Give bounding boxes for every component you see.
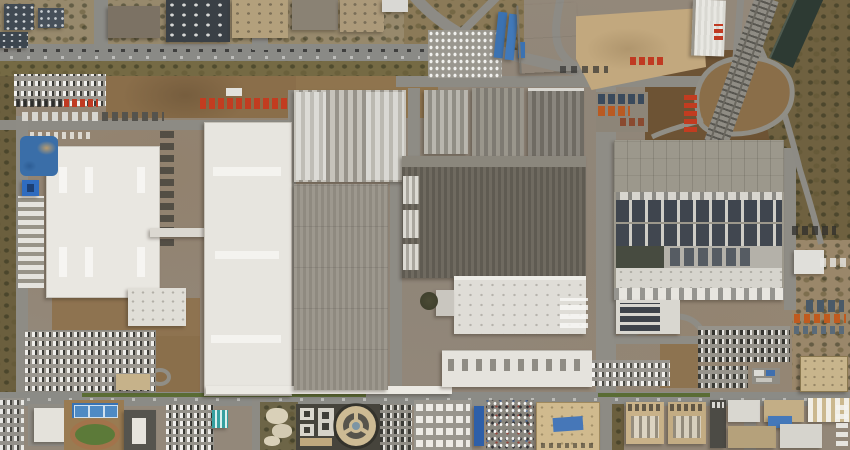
red-truck-near-ne	[714, 24, 723, 40]
court	[104, 405, 118, 418]
roof-vent-bar	[59, 167, 67, 193]
east-trucks-1	[792, 226, 836, 235]
inner-white	[631, 416, 659, 438]
factory-hall-a	[46, 146, 160, 298]
cyan-building	[212, 410, 228, 428]
dock-dashes	[670, 404, 704, 411]
solar-array-row-2	[616, 224, 782, 246]
apartment-block-2	[38, 8, 64, 28]
utility-roof-unit	[27, 184, 34, 192]
urban-road-v1	[94, 0, 108, 50]
urban-white-tower	[382, 0, 408, 12]
solar-divider-bar	[616, 192, 782, 200]
hall-c-white-section-2	[366, 92, 404, 180]
road-v-600	[596, 87, 616, 394]
solar-array-partial	[670, 248, 750, 266]
roof-vent-bar	[85, 167, 93, 193]
park-path-blob	[266, 408, 288, 424]
tan-h-building-1	[626, 402, 664, 444]
cluster-blue-unit	[766, 370, 775, 376]
east-containers	[806, 300, 844, 312]
blue-courts	[72, 403, 118, 418]
gray-trucks-row-n	[560, 66, 608, 73]
south-median-green-2	[598, 393, 710, 397]
roof-vent-bar	[211, 335, 281, 343]
boulevard-traffic	[4, 49, 424, 52]
trees-left-edge	[0, 58, 16, 400]
truck-row	[416, 404, 470, 411]
pavilion-east-parking	[380, 404, 412, 450]
apartment-block-3	[0, 32, 28, 48]
s1-blue-feature	[553, 416, 584, 432]
tan-h-building-2	[668, 402, 706, 444]
hall-c-east-2	[472, 88, 524, 156]
containers-darkblue	[598, 94, 644, 104]
cluster-white-unit	[754, 370, 764, 376]
hall-c-east-3	[528, 88, 584, 161]
road-v-408	[408, 88, 420, 158]
road-v-392	[390, 156, 402, 394]
hall-e-white-annex-3	[403, 244, 419, 270]
truck-row	[416, 428, 470, 435]
courtyard	[322, 423, 329, 430]
park-path-blob	[264, 436, 280, 446]
small-white-building-nw	[226, 88, 242, 96]
office-building-o1	[124, 410, 156, 450]
white-building-w3	[34, 408, 68, 442]
s1-dock-row	[541, 443, 595, 448]
west-corner-parking	[0, 398, 24, 450]
south-road-v-600	[598, 398, 612, 450]
urban-building-gray	[108, 6, 160, 38]
east-mixed-trucks	[794, 326, 846, 334]
courtyard	[304, 427, 310, 433]
warehouse-nw	[516, 2, 579, 73]
pond	[20, 136, 58, 176]
red-truck-row-c	[200, 98, 288, 109]
truck-row-b2	[102, 112, 164, 121]
se-block-tan-2	[728, 426, 776, 448]
east-tan-building	[800, 356, 848, 392]
roof-vent-bar	[137, 167, 145, 193]
solar-array-row-1	[616, 200, 782, 222]
inner-white	[673, 416, 701, 438]
solar-building	[614, 140, 784, 300]
solar-south-annex	[616, 300, 680, 334]
white-truck-lot	[414, 400, 472, 450]
urban-building-c1	[292, 0, 338, 30]
roof-vent-bar	[213, 167, 281, 176]
truck-row	[416, 440, 470, 447]
east-orange-trucks	[794, 314, 846, 323]
urban-tan-building	[232, 0, 288, 38]
center-south-parking	[166, 404, 214, 450]
roof-vent-bar	[59, 247, 67, 277]
white-trucks-east-g	[560, 298, 588, 328]
se-parking-2	[698, 366, 748, 388]
colorful-parking	[486, 400, 534, 450]
tree-clump-center	[420, 292, 438, 310]
hall-c-white-section	[296, 92, 326, 180]
blue-building-south	[474, 406, 484, 446]
running-track-field	[70, 419, 120, 450]
hall-e-top-band	[402, 156, 586, 167]
roof-vent-bar	[85, 247, 93, 277]
se-parking-white	[592, 360, 670, 386]
se-block-white-1	[728, 400, 760, 422]
solar-white-band	[616, 268, 782, 288]
roof-vent-bar	[215, 251, 279, 259]
office-tan-strip	[300, 438, 332, 446]
urban-building-c2	[340, 0, 384, 32]
dark-car-row-nw	[16, 99, 62, 107]
solar-annex-arrays	[620, 303, 660, 331]
factory-hall-b	[204, 122, 292, 396]
hall-e-white-annex-2	[403, 210, 419, 238]
park	[260, 402, 298, 450]
satellite-image	[0, 0, 850, 450]
se-parking-1	[698, 326, 790, 362]
red-truck-column	[684, 92, 697, 132]
boulevard-traffic-2	[10, 56, 420, 59]
court	[74, 405, 89, 418]
o1-white-core	[132, 418, 146, 444]
courtyard	[322, 412, 329, 419]
solar-top-roof	[614, 140, 784, 192]
factory-hall-e	[402, 156, 586, 278]
hall-f-annex	[436, 290, 454, 316]
se-trailer-column	[836, 404, 848, 446]
court	[89, 405, 104, 418]
red-truck-row-a	[64, 99, 98, 107]
se-small-cluster	[752, 368, 780, 384]
dock-dashes	[628, 404, 662, 411]
office-white-roof-1	[300, 408, 314, 420]
truck-row-b1	[22, 112, 98, 121]
solar-mid-band	[616, 246, 782, 268]
pavilion-center	[352, 422, 360, 430]
tan-building-s1	[536, 402, 600, 450]
east-trucks-2	[820, 258, 846, 267]
red-truck-row-d	[630, 57, 664, 65]
solar-dark-block	[616, 246, 664, 268]
trees-s-road	[612, 404, 624, 450]
blue-utility-building	[22, 180, 39, 196]
solar-bottom-strip	[614, 288, 784, 300]
apartment-block-1	[4, 4, 34, 30]
truck-row	[416, 416, 470, 423]
hall-g-vents	[448, 359, 586, 371]
hall-c-east-1	[424, 90, 468, 154]
conveyor-bridge	[150, 228, 208, 237]
factory-hall-c	[294, 90, 406, 182]
dirt-sw-2	[150, 336, 200, 392]
white-car-lot	[428, 30, 502, 78]
trailer-lot-west	[18, 196, 44, 288]
se-block-white-2	[780, 424, 822, 448]
dark-building-south	[710, 400, 726, 448]
hall-a-annex	[128, 288, 186, 326]
factory-hall-g	[442, 350, 592, 387]
factory-hall-d	[294, 184, 388, 390]
urban-courtyard-building	[166, 0, 230, 42]
white-units	[712, 402, 724, 408]
round-pavilion	[336, 406, 376, 446]
cluster-white-bar	[756, 378, 772, 382]
hall-e-white-annex-1	[403, 176, 419, 204]
roof-vent-bar	[137, 247, 145, 277]
containers-rust	[620, 118, 644, 126]
containers-orange	[598, 106, 630, 116]
office-white-roof-3	[318, 408, 334, 436]
boulevard	[0, 44, 436, 62]
sw-tan-building	[116, 374, 150, 390]
courtyard	[304, 411, 310, 417]
office-white-roof-2	[300, 424, 314, 436]
